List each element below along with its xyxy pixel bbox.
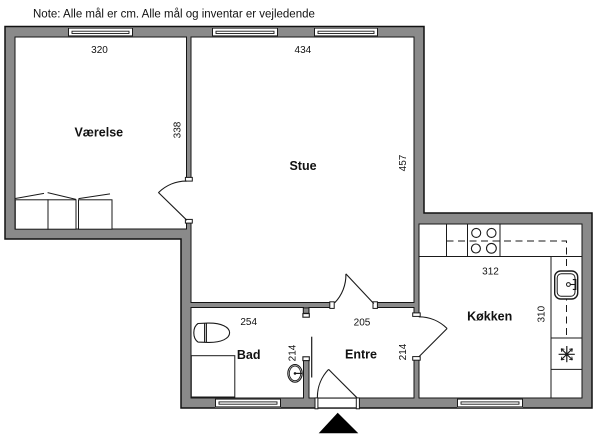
svg-text:Note: Alle mål er cm. Alle mål: Note: Alle mål er cm. Alle mål og invent… [33,9,315,21]
svg-text:Bad: Bad [237,348,261,362]
svg-text:205: 205 [354,317,371,328]
svg-text:434: 434 [295,45,312,56]
svg-text:Værelse: Værelse [74,125,123,139]
svg-text:214: 214 [288,344,299,361]
svg-text:338: 338 [172,121,183,138]
svg-text:457: 457 [398,154,409,171]
svg-text:312: 312 [482,267,499,278]
svg-text:Entre: Entre [345,348,377,362]
svg-text:310: 310 [537,305,548,322]
svg-text:254: 254 [240,317,257,328]
svg-text:214: 214 [398,343,409,360]
svg-text:Stue: Stue [289,159,316,173]
svg-text:320: 320 [91,45,108,56]
svg-text:Køkken: Køkken [467,309,512,323]
